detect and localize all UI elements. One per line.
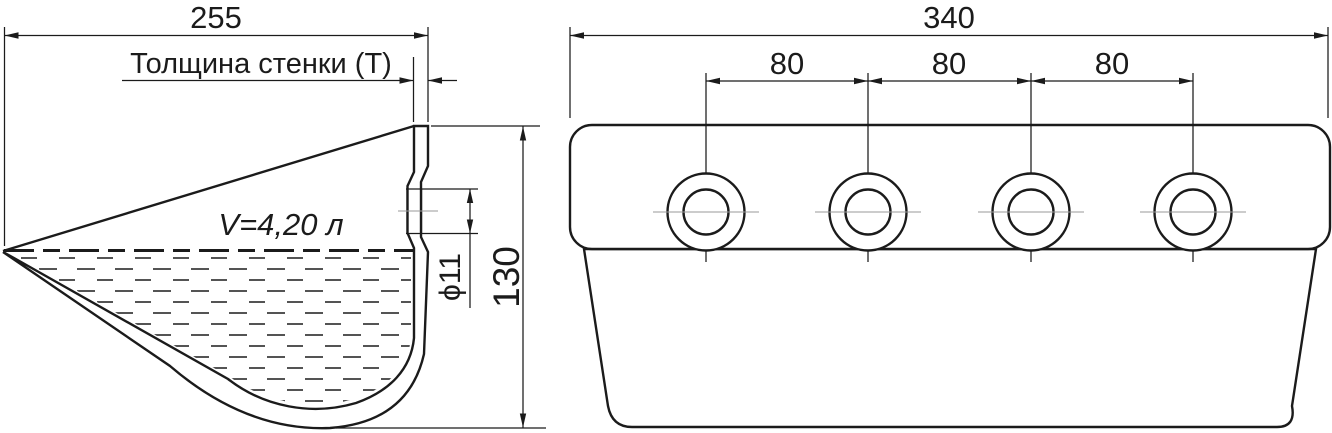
front-view: 340 80 80 80: [570, 0, 1330, 427]
bucket-body-outline: [584, 249, 1316, 427]
bucket-technical-drawing: V=4,20 л 255 Толщина стенки (Т) ϕ1: [0, 0, 1332, 433]
dim-80-value-2: 80: [932, 46, 966, 81]
lip-edge-line: [3, 126, 414, 251]
wall-thickness-callout: Толщина стенки (Т): [122, 48, 457, 122]
dim-130-value: 130: [486, 246, 527, 308]
dim-width-255: 255: [5, 0, 429, 246]
dim-80-value-3: 80: [1095, 46, 1129, 81]
volume-label: V=4,20 л: [218, 207, 343, 242]
wall-thickness-text: Толщина стенки (Т): [130, 48, 392, 80]
drawing-svg: V=4,20 л 255 Толщина стенки (Т) ϕ1: [0, 0, 1332, 433]
dim-255-value: 255: [190, 0, 242, 35]
side-view: V=4,20 л 255 Толщина стенки (Т) ϕ1: [3, 0, 546, 428]
dim-80-value-1: 80: [770, 46, 804, 81]
dim-phi11-value: ϕ11: [434, 253, 467, 301]
dim-340-value: 340: [923, 0, 975, 35]
dim-hole-spacing: 80 80 80: [706, 46, 1193, 84]
